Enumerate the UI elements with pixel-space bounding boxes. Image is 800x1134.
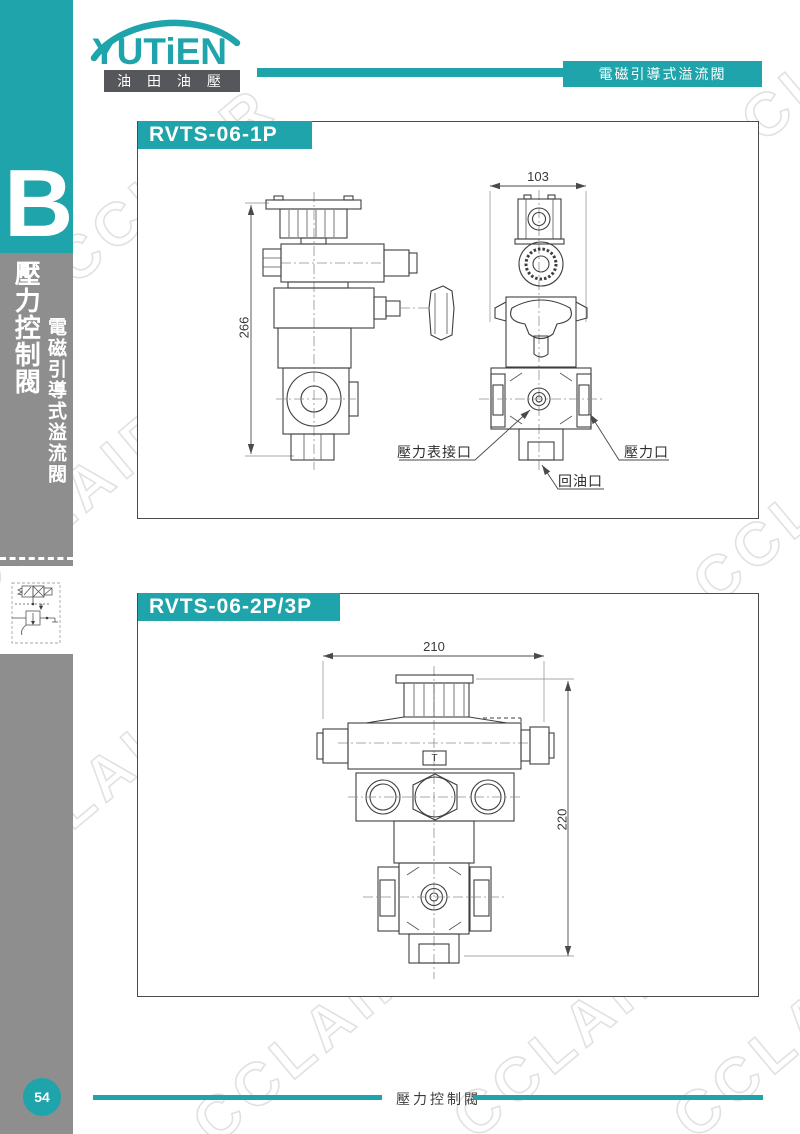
footer-chapter-title: 壓力控制閥 [396,1089,481,1109]
header-accent-bar [257,68,563,77]
page-number-badge: 54 [23,1078,61,1116]
gauge-port-label: 壓力表接口 [397,442,472,462]
hydraulic-circuit-schematic [9,578,65,648]
dim-height-266: 266 [237,308,252,348]
brand-logo: YUTiEN [92,31,227,73]
return-port-label: 回油口 [558,471,603,491]
sidebar-category-title: 壓力控制閥 [12,260,39,395]
section-rvts-06-2p-3p: RVTS-06-2P/3P [137,593,759,997]
sidebar-dashed-divider [0,557,73,560]
brand-logo-subtitle: 油 田 油 壓 [104,70,240,92]
dim-width-210: 210 [414,639,454,654]
sidebar-lower-gray [0,654,73,1134]
side-view [479,186,603,472]
pressure-port-label: 壓力口 [624,442,669,462]
body-t-mark: T [423,753,446,764]
header-category-tab: 電磁引導式溢流閥 [563,61,762,87]
section-rvts-06-1p: RVTS-06-1P [137,121,759,519]
dim-height-220: 220 [555,800,570,840]
footer-rule-right [473,1095,763,1100]
sidebar-valve-subtitle: 電磁引導式溢流閥 [45,317,65,485]
catalog-page: CCLAIR CCLAIR CCLAIR CCLAIR CCLAIR CCLAI… [0,0,800,1134]
sidebar-section-block: B [0,0,73,253]
dim-width-103: 103 [518,169,558,184]
front-view [317,656,574,979]
section-letter: B [4,156,73,252]
footer-rule-left [93,1095,382,1100]
front-view [245,192,454,470]
